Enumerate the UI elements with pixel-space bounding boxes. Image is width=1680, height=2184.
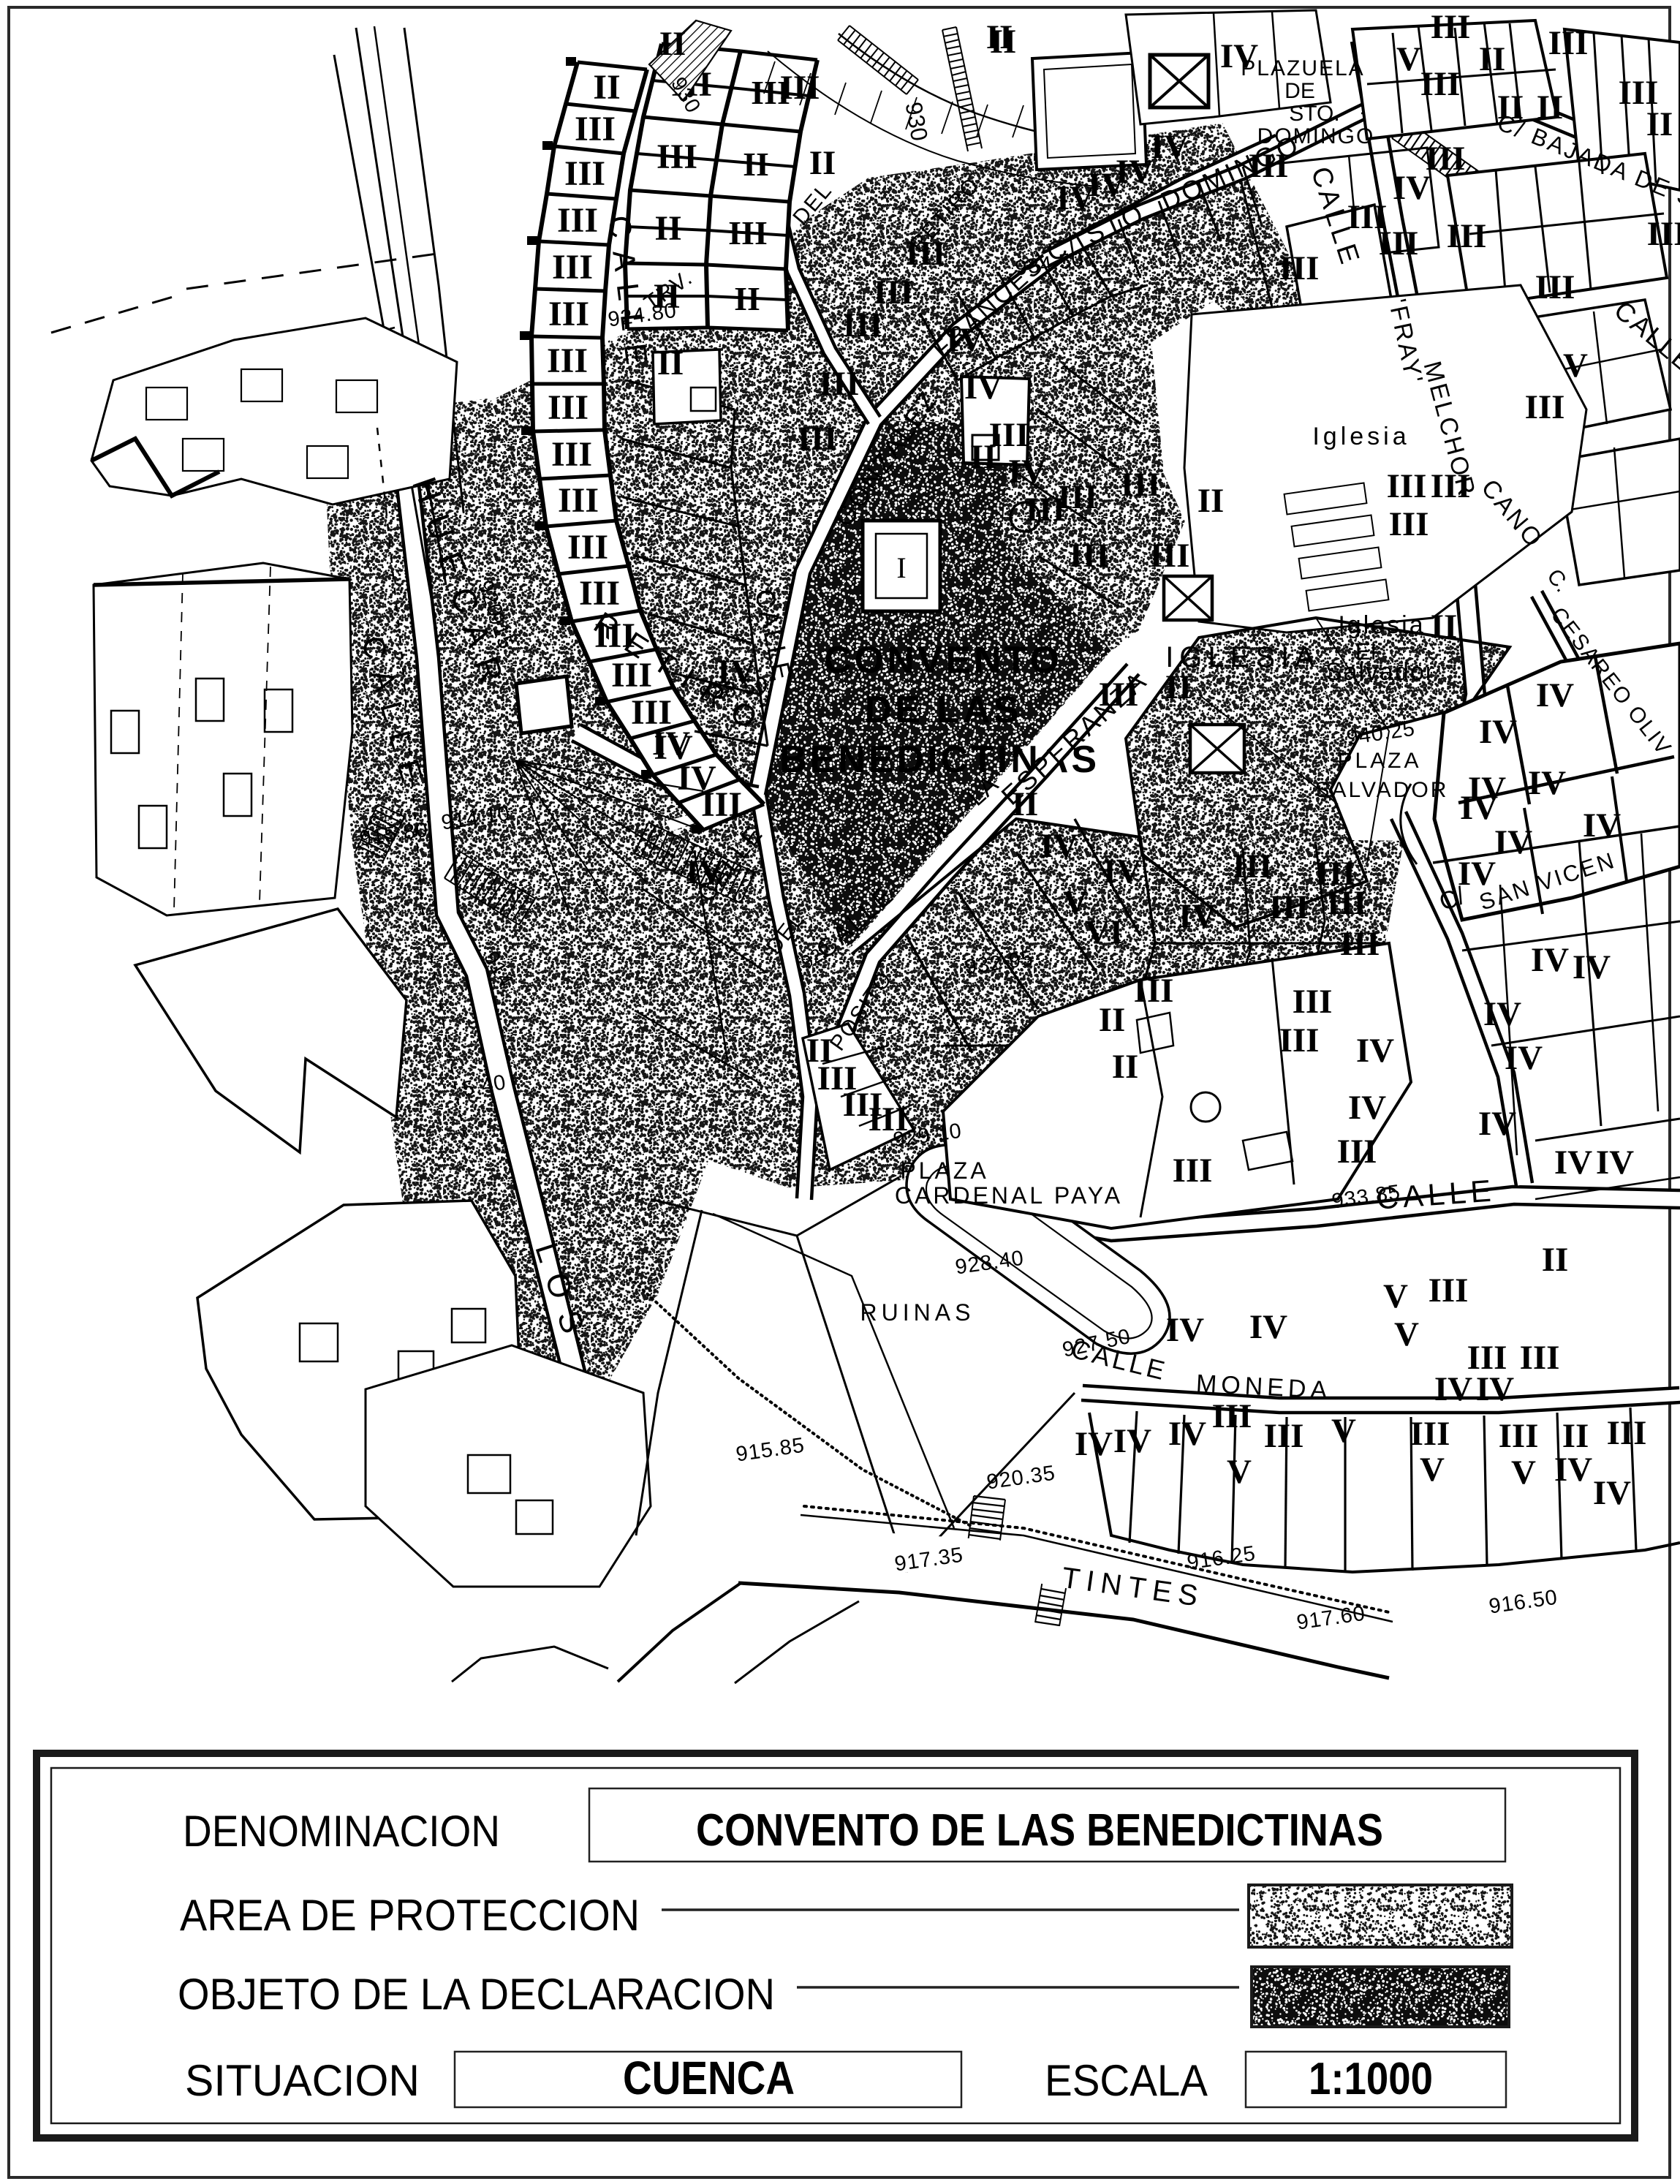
svg-text:III: III: [728, 214, 768, 252]
svg-text:IV: IV: [1166, 1311, 1204, 1349]
svg-text:II: II: [1112, 1048, 1139, 1086]
svg-text:III: III: [567, 528, 608, 567]
svg-text:IV: IV: [1220, 37, 1258, 75]
svg-text:IV: IV: [1479, 713, 1517, 751]
svg-text:STO.: STO.: [1289, 102, 1339, 126]
svg-text:II: II: [1099, 1001, 1126, 1039]
svg-text:IV: IV: [686, 853, 724, 891]
svg-text:IV: IV: [1596, 1144, 1634, 1182]
svg-text:III: III: [1431, 8, 1471, 46]
svg-text:II: II: [1165, 668, 1192, 706]
svg-text:IV: IV: [1531, 941, 1569, 979]
svg-text:III: III: [1279, 1021, 1320, 1059]
svg-text:II: II: [809, 144, 836, 182]
svg-text:II: II: [1562, 1417, 1589, 1455]
svg-text:II: II: [1542, 1241, 1569, 1279]
svg-text:Salvador: Salvador: [1325, 658, 1435, 686]
svg-text:IV: IV: [1554, 1144, 1592, 1182]
svg-text:III: III: [551, 435, 592, 474]
svg-text:III: III: [657, 137, 697, 176]
svg-text:V: V: [1511, 1454, 1536, 1492]
svg-text:DENOMINACION: DENOMINACION: [183, 1807, 500, 1856]
svg-text:III: III: [798, 420, 838, 458]
svg-text:IV: IV: [964, 369, 1002, 407]
svg-text:II: II: [743, 146, 769, 183]
svg-text:CARDENAL PAYA: CARDENAL PAYA: [895, 1182, 1123, 1209]
svg-text:SITUACION: SITUACION: [185, 2056, 420, 2105]
svg-text:III: III: [579, 574, 620, 613]
svg-text:V: V: [1227, 1453, 1252, 1491]
svg-text:III: III: [1070, 537, 1110, 575]
svg-text:IV: IV: [1593, 1474, 1631, 1512]
svg-text:III: III: [1327, 884, 1367, 922]
svg-text:II: II: [986, 18, 1013, 56]
svg-text:III: III: [1150, 537, 1190, 575]
svg-text:III: III: [1233, 847, 1273, 885]
svg-text:III: III: [1447, 217, 1487, 255]
svg-text:III: III: [1535, 268, 1575, 306]
svg-text:I: I: [896, 551, 906, 584]
svg-text:IV: IV: [1168, 1415, 1206, 1453]
svg-text:ESCALA: ESCALA: [1045, 2056, 1208, 2105]
svg-text:III: III: [1379, 224, 1419, 262]
svg-text:III: III: [1499, 1417, 1539, 1455]
svg-text:VI: VI: [1085, 913, 1123, 951]
svg-text:PLAZUELA: PLAZUELA: [1241, 56, 1364, 80]
svg-text:IV: IV: [1075, 1425, 1113, 1463]
svg-text:III: III: [1099, 676, 1139, 714]
svg-text:II: II: [1012, 785, 1039, 823]
svg-text:III: III: [547, 341, 588, 380]
svg-text:II: II: [1197, 482, 1225, 520]
svg-text:IV: IV: [717, 653, 755, 691]
svg-text:III: III: [1431, 467, 1471, 505]
svg-text:IV: IV: [1116, 153, 1154, 191]
svg-text:IV: IV: [1434, 1370, 1472, 1408]
svg-text:IV: IV: [1103, 853, 1141, 891]
svg-text:III: III: [1121, 466, 1161, 504]
svg-text:IV: IV: [1528, 764, 1566, 802]
svg-text:V: V: [1563, 347, 1588, 385]
svg-text:IV: IV: [1478, 1105, 1516, 1143]
svg-text:V: V: [1394, 1315, 1419, 1353]
svg-text:II: II: [659, 25, 686, 63]
svg-text:III: III: [564, 154, 605, 193]
svg-text:II: II: [1479, 40, 1506, 78]
svg-text:DE LAS: DE LAS: [865, 689, 1022, 731]
svg-text:IV: IV: [1249, 1308, 1287, 1346]
svg-text:III: III: [1607, 1414, 1647, 1452]
svg-text:III: III: [1387, 467, 1427, 505]
svg-text:AREA DE PROTECCION: AREA DE PROTECCION: [180, 1891, 640, 1940]
svg-text:III: III: [1548, 24, 1589, 62]
svg-text:III: III: [1293, 983, 1333, 1021]
svg-text:III: III: [575, 110, 616, 148]
svg-text:Iglesia: Iglesia: [1312, 423, 1410, 450]
svg-text:CUENCA: CUENCA: [623, 2052, 795, 2104]
svg-text:III: III: [701, 785, 742, 824]
svg-text:IV: IV: [1040, 827, 1078, 865]
svg-text:II: II: [734, 280, 760, 317]
svg-text:RUINAS: RUINAS: [860, 1299, 975, 1326]
svg-text:III: III: [548, 295, 589, 333]
svg-text:DE: DE: [1284, 79, 1315, 103]
svg-text:IV: IV: [1178, 897, 1217, 935]
svg-text:IV: IV: [1151, 128, 1189, 166]
svg-text:III: III: [1134, 972, 1174, 1010]
svg-text:II: II: [657, 344, 684, 382]
svg-text:V: V: [1383, 1277, 1408, 1315]
svg-text:DOMINGO: DOMINGO: [1257, 124, 1375, 148]
svg-text:III: III: [1337, 1133, 1377, 1171]
svg-text:III: III: [1269, 888, 1309, 926]
svg-text:II: II: [593, 68, 620, 107]
svg-text:OBJETO DE LA DECLARACION: OBJETO DE LA DECLARACION: [178, 1970, 775, 2019]
svg-text:II: II: [1646, 105, 1673, 143]
svg-text:III: III: [1026, 491, 1066, 529]
svg-text:III: III: [552, 248, 593, 287]
svg-text:V: V: [1420, 1451, 1445, 1489]
svg-text:1:1000: 1:1000: [1309, 2054, 1433, 2104]
svg-text:II: II: [1431, 608, 1458, 646]
svg-text:III: III: [557, 201, 598, 240]
svg-text:III: III: [1647, 215, 1680, 253]
svg-text:III: III: [1173, 1152, 1213, 1190]
svg-text:PLAZA: PLAZA: [900, 1157, 988, 1184]
svg-text:IV: IV: [1573, 948, 1611, 986]
svg-text:III: III: [989, 416, 1029, 454]
svg-text:IV: IV: [652, 725, 690, 763]
svg-text:IV: IV: [1583, 806, 1621, 844]
svg-text:IV: IV: [946, 321, 984, 359]
svg-text:III: III: [780, 69, 820, 107]
svg-text:IV: IV: [1008, 453, 1046, 491]
svg-text:Iglesia: Iglesia: [1338, 611, 1425, 639]
svg-text:V: V: [1396, 40, 1421, 78]
svg-text:PLAZA: PLAZA: [1337, 749, 1421, 773]
svg-text:III: III: [1525, 388, 1565, 426]
svg-text:II: II: [654, 209, 681, 248]
svg-text:III: III: [1212, 1397, 1252, 1435]
svg-text:III: III: [1279, 249, 1320, 287]
svg-text:IV: IV: [1113, 1422, 1151, 1460]
svg-text:IV: IV: [1536, 676, 1574, 714]
svg-text:III: III: [1389, 505, 1429, 543]
svg-text:V: V: [1331, 1412, 1356, 1450]
svg-text:IV: IV: [1458, 855, 1496, 893]
svg-text:IV: IV: [1483, 995, 1521, 1033]
svg-text:IV: IV: [1476, 1370, 1514, 1408]
svg-text:III: III: [1420, 65, 1461, 103]
svg-text:III: III: [869, 1100, 909, 1138]
svg-text:IV: IV: [1494, 823, 1532, 861]
svg-text:SALVADOR: SALVADOR: [1315, 778, 1449, 802]
svg-text:IV: IV: [1468, 770, 1506, 808]
svg-text:IV: IV: [1505, 1039, 1543, 1077]
svg-text:III: III: [1410, 1415, 1450, 1453]
svg-text:III: III: [1426, 140, 1466, 178]
svg-text:II: II: [1497, 88, 1524, 126]
svg-text:CONVENTO DE LAS BENEDICTINAS: CONVENTO DE LAS BENEDICTINAS: [696, 1805, 1383, 1856]
svg-text:IV: IV: [1348, 1089, 1386, 1127]
svg-text:III: III: [1264, 1417, 1304, 1455]
svg-text:IV: IV: [1554, 1451, 1592, 1489]
svg-text:II: II: [1537, 88, 1564, 126]
svg-text:III: III: [1429, 1272, 1469, 1310]
svg-text:III: III: [1249, 147, 1289, 185]
svg-text:CONVENTO: CONVENTO: [824, 639, 1062, 681]
svg-text:III: III: [548, 388, 589, 427]
svg-text:III: III: [558, 481, 599, 520]
svg-text:III: III: [1340, 925, 1380, 963]
svg-text:III: III: [906, 235, 946, 273]
svg-text:IV: IV: [1356, 1032, 1394, 1070]
svg-text:III: III: [843, 306, 883, 344]
svg-text:III: III: [1520, 1339, 1560, 1377]
svg-text:III: III: [820, 365, 860, 403]
